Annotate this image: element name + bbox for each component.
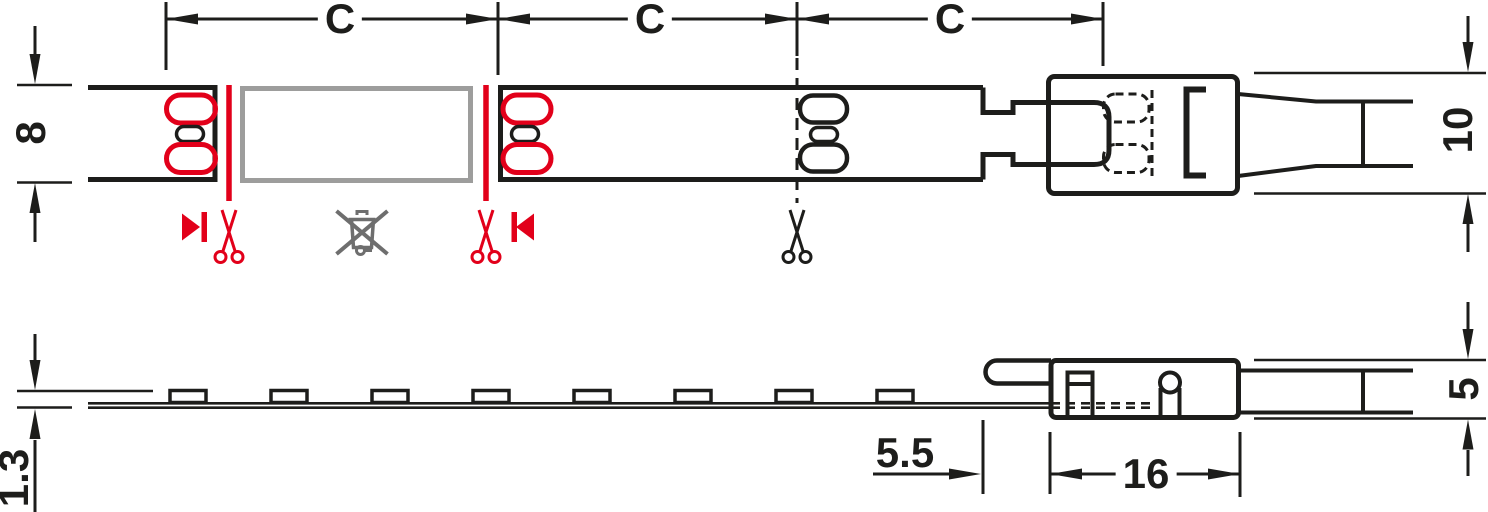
strip-segment-left bbox=[88, 88, 215, 180]
technical-drawing-canvas: C C C 8 10 1.3 5.5 16 5 bbox=[0, 0, 1488, 512]
dimension-tape-height bbox=[17, 334, 153, 512]
dimension-linework bbox=[17, 2, 1486, 512]
connector-contact-bracket bbox=[1187, 90, 1207, 176]
scissors-icon bbox=[472, 210, 500, 263]
dim-label-connector-width: 10 bbox=[1437, 107, 1479, 154]
dim-label-connector-lead: 5.5 bbox=[876, 432, 934, 474]
connector-cable bbox=[1238, 94, 1413, 176]
dim-label-connector-length: 16 bbox=[1116, 453, 1177, 495]
dim-label-strip-width: 8 bbox=[10, 121, 52, 144]
connector-clip-tongue-side bbox=[986, 361, 1051, 384]
scissors-icon bbox=[783, 210, 811, 263]
connector-top-view bbox=[983, 77, 1413, 194]
solder-pads-red-left bbox=[167, 95, 216, 173]
side-view bbox=[88, 361, 1413, 418]
connector-cable-side bbox=[1238, 371, 1413, 413]
strip-waste-segment bbox=[243, 89, 471, 181]
strip-segment-main bbox=[501, 88, 984, 180]
connector-side-view bbox=[986, 361, 1413, 418]
weee-crossed-bin-icon bbox=[337, 211, 388, 255]
dim-label-c1: C bbox=[318, 0, 362, 40]
cut-direction-marker-right-icon bbox=[182, 212, 207, 242]
solder-pads-red-main bbox=[503, 95, 551, 173]
solder-pads-black bbox=[800, 96, 847, 172]
drawing-linework bbox=[0, 0, 1488, 512]
dim-label-c2: C bbox=[628, 0, 672, 40]
dim-label-tape-height: 1.3 bbox=[0, 449, 35, 507]
cut-direction-marker-left-icon bbox=[512, 212, 535, 242]
led-chips bbox=[170, 391, 913, 403]
top-view bbox=[88, 58, 1413, 263]
connector-pin bbox=[1160, 373, 1180, 393]
scissors-icon bbox=[215, 210, 243, 263]
dim-label-connector-height: 5 bbox=[1443, 377, 1485, 400]
dim-label-c3: C bbox=[928, 0, 972, 40]
